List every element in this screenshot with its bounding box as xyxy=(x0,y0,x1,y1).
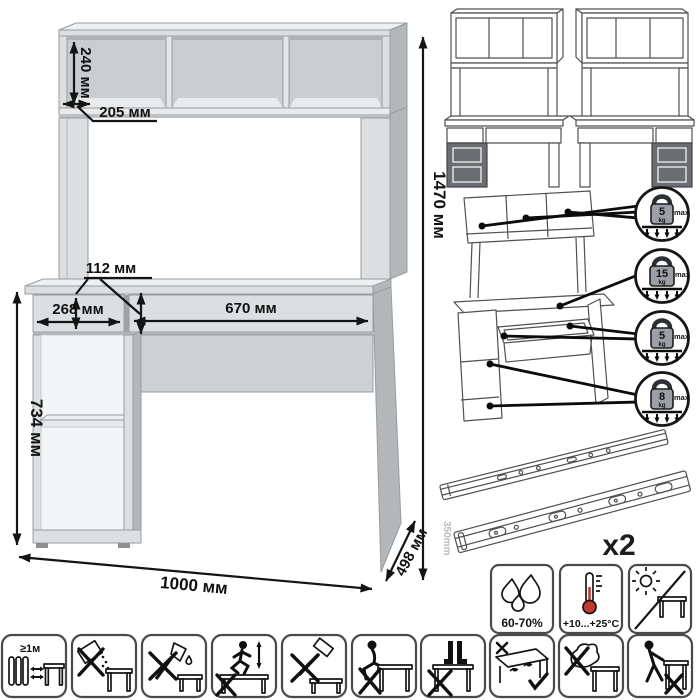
main-dimension-drawing: 240 мм 205 мм 112 мм 268 мм 670 мм 734 м… xyxy=(0,0,450,625)
load-qualifier: max xyxy=(674,208,690,217)
load-qualifier: max xyxy=(675,270,691,279)
modesty-panel xyxy=(133,335,373,392)
temperature-label: +10...+25°C xyxy=(563,618,620,630)
environment-conditions: 60-70% +10...+25°C xyxy=(488,561,699,639)
keep-distance-from-heat-icon: ≥1м xyxy=(2,635,66,697)
variant-pedestal-right xyxy=(570,9,694,187)
load-limit-desktop: 15 kg max xyxy=(636,250,691,303)
safety-pictograms: ≥1м xyxy=(0,633,699,700)
no-spilling-icon xyxy=(72,635,136,697)
drawer-slides-illustration: 350mm x2 xyxy=(433,425,699,565)
no-dragging-icon xyxy=(628,635,692,697)
no-standing-icon xyxy=(421,635,485,697)
thermometer-bulb xyxy=(583,601,596,614)
load-qualifier: max xyxy=(674,332,690,341)
dim-hutch-depth: 205 мм xyxy=(99,104,150,121)
load-value: 5 xyxy=(659,330,665,342)
no-sharp-impact-icon xyxy=(142,635,206,697)
exploded-load-diagram: 5 kg max 15 kg max 5 kg max xyxy=(440,186,699,432)
dim-hutch-inner-height: 240 мм xyxy=(77,47,94,98)
humidity-label: 60-70% xyxy=(501,616,543,630)
load-value: 5 xyxy=(659,206,665,218)
load-qualifier: max xyxy=(674,393,690,402)
product-diagram-canvas: 240 мм 205 мм 112 мм 268 мм 670 мм 734 м… xyxy=(0,0,699,700)
lift-correctly-icon xyxy=(490,635,554,697)
dim-drawer-width: 670 мм xyxy=(225,300,276,317)
no-hammering-icon xyxy=(282,635,346,697)
hutch-drawing xyxy=(59,23,407,282)
dim-left-section-width: 268 мм xyxy=(52,301,103,318)
pedestal-shelf xyxy=(41,420,124,427)
dim-overall-depth: 498 мм xyxy=(392,526,431,579)
variant-pedestal-left xyxy=(445,9,569,187)
slide-quantity-label: x2 xyxy=(602,529,635,562)
load-unit: kg xyxy=(658,403,665,409)
load-limit-shelves: 8 kg max xyxy=(636,373,690,426)
load-value: 15 xyxy=(656,268,668,280)
no-sitting-icon xyxy=(352,635,416,697)
temperature-icon: +10...+25°C xyxy=(560,565,622,633)
orientation-variants xyxy=(440,2,699,190)
dim-underdesk-height: 734 мм xyxy=(27,399,46,457)
no-jumping-icon xyxy=(212,635,276,697)
slide-length-label: 350mm xyxy=(441,521,452,556)
load-limit-drawer: 5 kg max xyxy=(636,312,690,365)
load-unit: kg xyxy=(658,342,665,348)
load-limit-hutch: 5 kg max xyxy=(636,188,690,241)
load-unit: kg xyxy=(658,280,665,286)
humidity-icon: 60-70% xyxy=(491,565,553,633)
dim-overall-width: 1000 мм xyxy=(159,573,228,598)
dim-drawer-front-height: 112 мм xyxy=(86,260,137,277)
no-direct-sunlight-icon xyxy=(629,565,691,633)
no-leaning-load-icon xyxy=(559,635,623,697)
exploded-desk-lineart xyxy=(454,191,614,421)
load-value: 8 xyxy=(659,391,665,403)
heat-distance-label: ≥1м xyxy=(20,643,40,655)
load-unit: kg xyxy=(658,218,665,224)
